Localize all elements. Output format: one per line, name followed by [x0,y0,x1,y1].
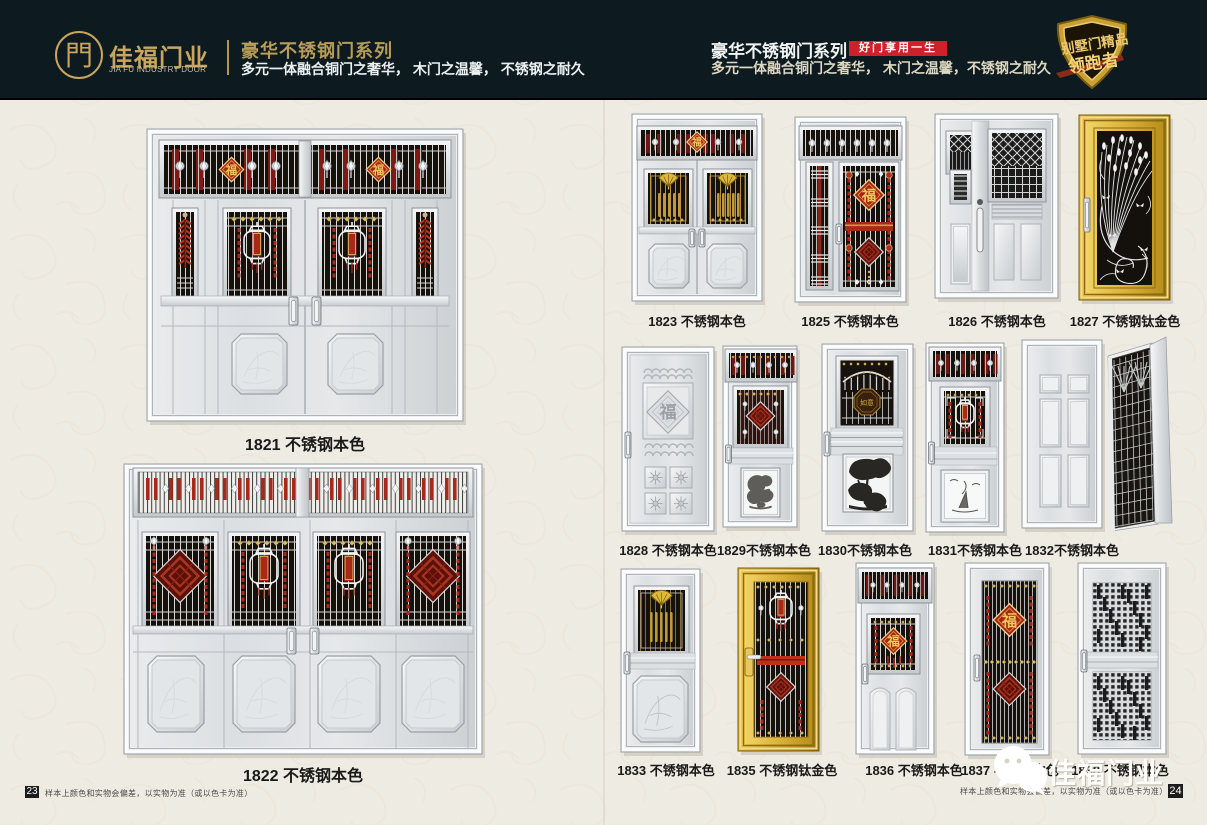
svg-text:如意: 如意 [860,398,874,407]
svg-text:福: 福 [1001,612,1017,630]
svg-text:福: 福 [372,163,384,177]
svg-text:福: 福 [691,137,702,149]
svg-text:福: 福 [861,186,876,204]
svg-text:福: 福 [659,402,677,422]
svg-text:福: 福 [225,163,237,177]
svg-text:福: 福 [886,634,899,649]
